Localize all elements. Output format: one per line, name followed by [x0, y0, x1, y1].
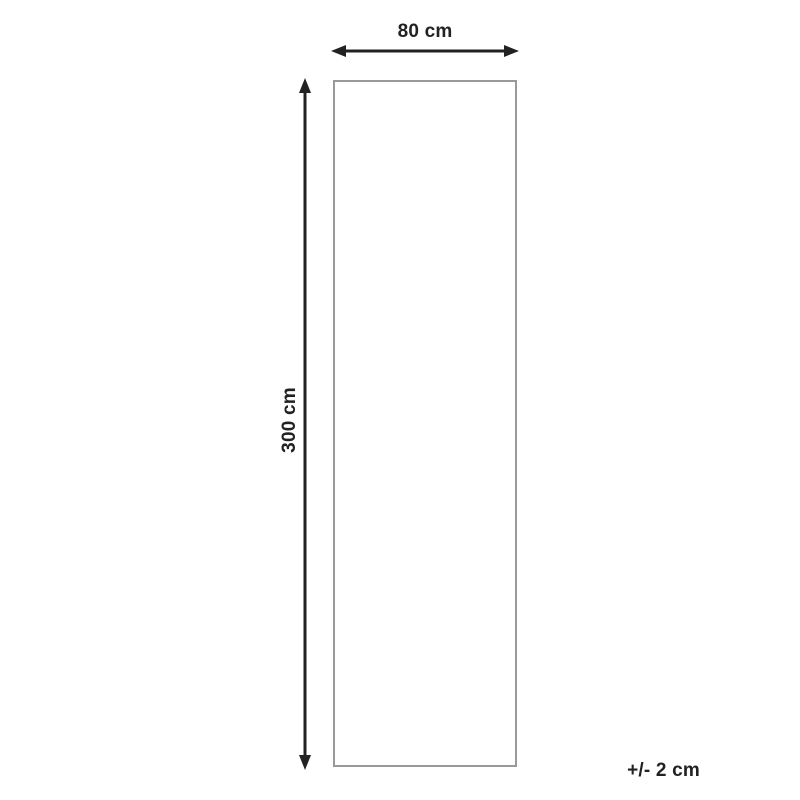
height-label: 300 cm — [279, 387, 301, 453]
arrow-right-head-icon — [504, 45, 519, 57]
tolerance-label: +/- 2 cm — [627, 760, 700, 782]
product-outline — [333, 80, 517, 767]
dimension-diagram: 80 cm 300 cm +/- 2 cm — [0, 0, 800, 800]
arrow-down-head-icon — [299, 755, 311, 770]
width-arrow-icon — [331, 43, 519, 59]
width-label: 80 cm — [331, 21, 519, 43]
